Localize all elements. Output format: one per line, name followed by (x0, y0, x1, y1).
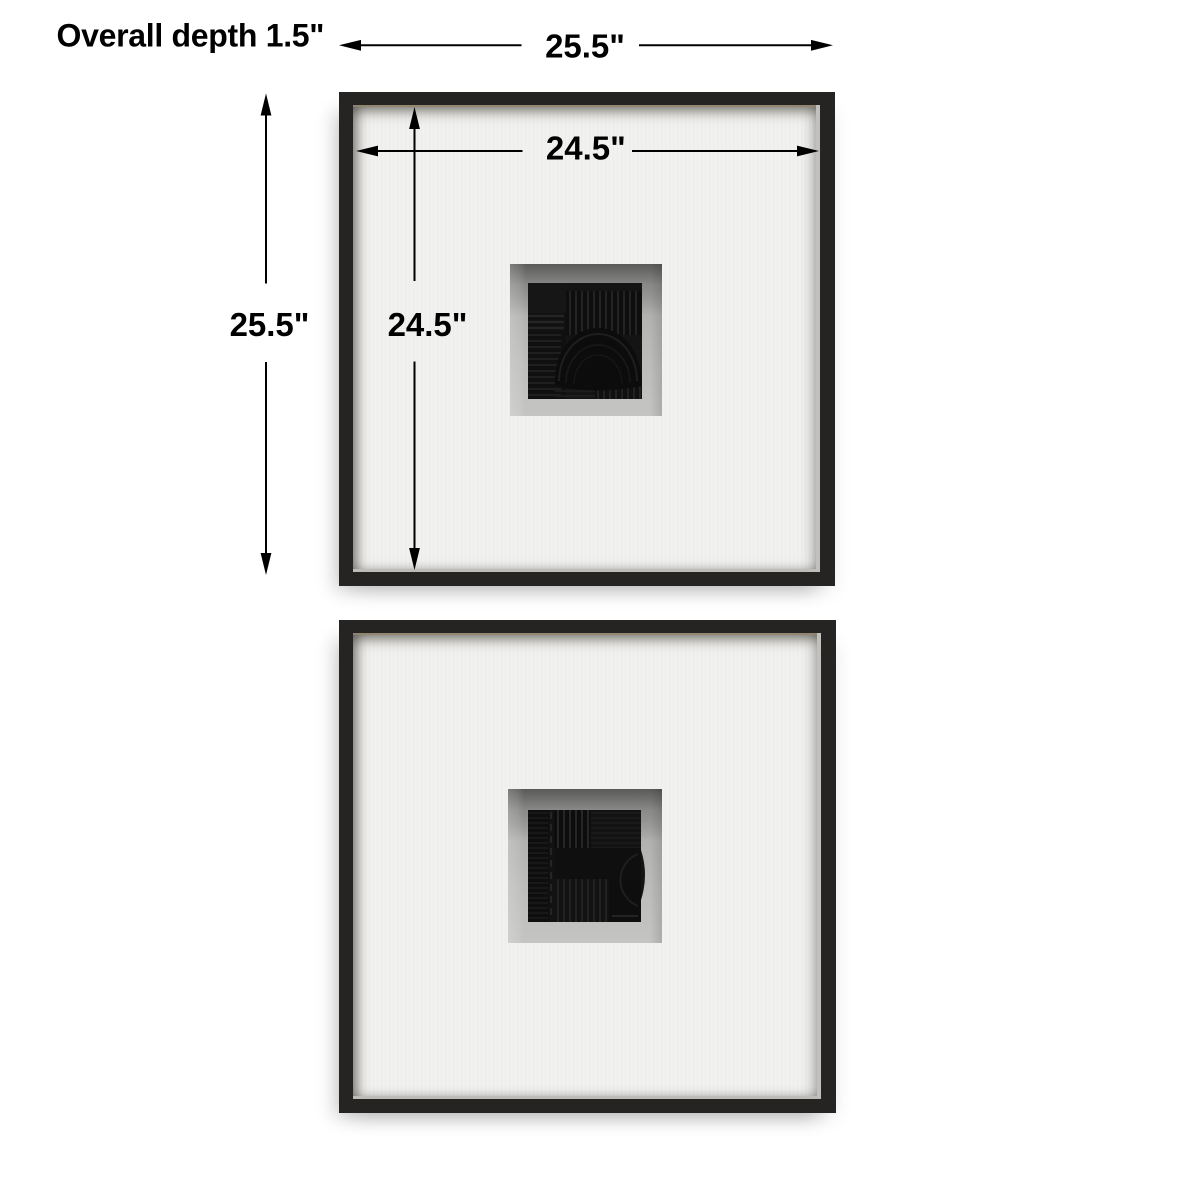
svg-text:Overall depth 1.5": Overall depth 1.5" (57, 18, 325, 54)
svg-text:25.5": 25.5" (545, 27, 625, 64)
svg-text:24.5": 24.5" (388, 306, 468, 343)
svg-text:25.5": 25.5" (230, 306, 310, 343)
svg-text:24.5": 24.5" (546, 130, 626, 167)
